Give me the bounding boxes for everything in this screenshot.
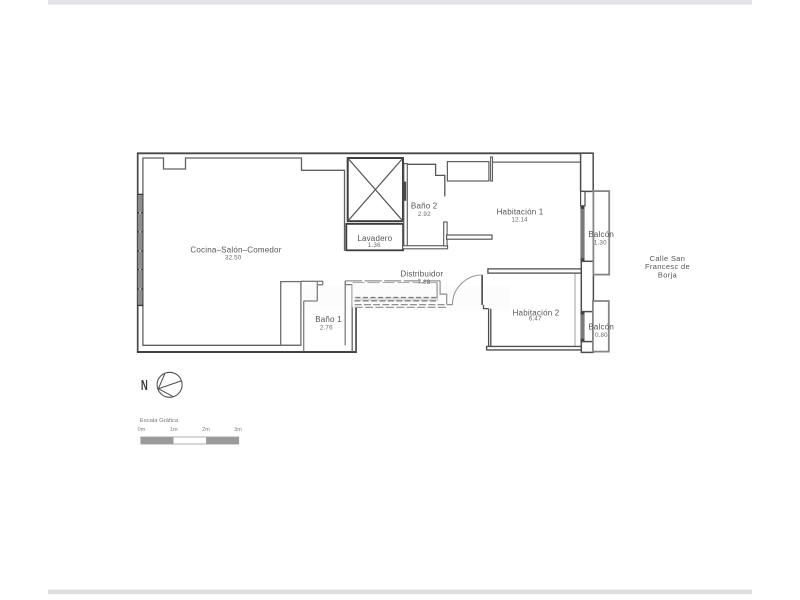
svg-text:Baño 2: Baño 2 <box>411 202 438 211</box>
svg-text:3m: 3m <box>234 427 242 433</box>
svg-text:7.88: 7.88 <box>418 279 431 286</box>
svg-text:0.80: 0.80 <box>595 332 608 339</box>
svg-text:Baño 1: Baño 1 <box>315 315 342 324</box>
svg-text:2m: 2m <box>202 427 210 433</box>
svg-text:Borja: Borja <box>658 271 678 280</box>
svg-text:12.14: 12.14 <box>511 216 528 223</box>
svg-text:Balcón: Balcón <box>588 323 614 332</box>
svg-text:Cocina–Salón–Comedor: Cocina–Salón–Comedor <box>190 246 281 255</box>
svg-text:Habitación 1: Habitación 1 <box>497 208 544 217</box>
svg-text:2.76: 2.76 <box>320 325 333 332</box>
svg-text:Escala Gráfica: Escala Gráfica <box>140 418 179 424</box>
svg-text:Balcón: Balcón <box>588 230 614 239</box>
svg-text:Distribuidor: Distribuidor <box>400 270 443 279</box>
svg-text:32.50: 32.50 <box>225 254 242 261</box>
svg-text:N: N <box>141 377 148 394</box>
svg-text:1.36: 1.36 <box>368 242 381 249</box>
svg-text:2.92: 2.92 <box>418 211 431 218</box>
svg-text:1.30: 1.30 <box>594 239 607 246</box>
svg-text:1m: 1m <box>170 427 178 433</box>
svg-text:6.47: 6.47 <box>529 316 542 323</box>
svg-text:0m: 0m <box>138 427 146 433</box>
